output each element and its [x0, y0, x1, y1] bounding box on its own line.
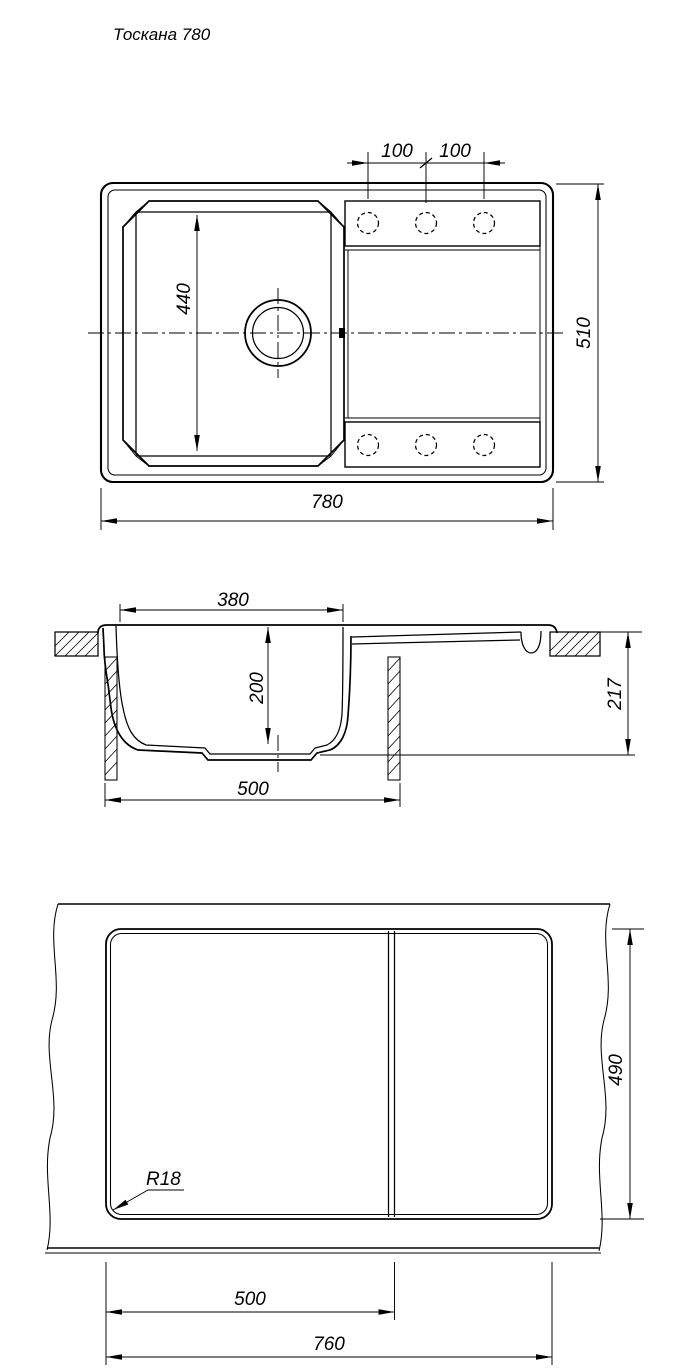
dim-label-200: 200: [247, 672, 268, 705]
rim-top-surface: [98, 625, 557, 633]
arrowhead: [327, 607, 343, 613]
arrowhead: [113, 1200, 128, 1210]
drainboard-surface: [352, 632, 521, 637]
dim-label-100-right: 100: [439, 141, 471, 162]
dim-label-217: 217: [605, 677, 626, 711]
technical-drawing-canvas: Тоскана 780: [0, 0, 696, 1372]
dim-label-500-cutout: 500: [234, 1289, 266, 1310]
countertop-section: [55, 632, 600, 656]
tap-hole: [416, 435, 437, 456]
sink-outer-outline: [101, 183, 553, 482]
arrowhead: [194, 215, 200, 231]
cutout-view: R18 490 500 760: [45, 904, 644, 1365]
arrowhead: [352, 160, 368, 166]
arrowhead: [595, 184, 601, 200]
dimension-bowl-depth: 200: [247, 627, 271, 744]
dimension-hole-pitch: 100 100: [347, 141, 505, 203]
dim-label-780: 780: [311, 492, 343, 513]
tap-hole: [358, 435, 379, 456]
dim-label-760: 760: [313, 1334, 345, 1355]
drainboard: [345, 201, 540, 467]
radius-label: R18: [146, 1169, 181, 1190]
arrowhead: [625, 632, 631, 648]
hatching-left: [55, 632, 98, 656]
hatching-right: [550, 632, 600, 656]
radius-callout: R18: [113, 1169, 184, 1210]
dim-label-510: 510: [574, 317, 595, 349]
tap-platform-top: [345, 201, 540, 246]
dimension-total-height: 217: [600, 632, 642, 755]
leader-line: [113, 1190, 184, 1210]
dim-label-380: 380: [217, 590, 249, 611]
tap-hole: [474, 435, 495, 456]
arrowhead: [101, 518, 117, 524]
top-view: 100 100 440 510 780: [88, 141, 604, 530]
bowl-wall-outer: [103, 628, 351, 760]
drip-groove: [521, 631, 541, 653]
arrowhead: [120, 607, 136, 613]
sink-rim-inner-line: [108, 190, 546, 475]
arrowhead: [194, 435, 200, 451]
arrowhead: [106, 1354, 122, 1360]
drawing-page: Тоскана 780: [0, 0, 696, 1372]
dim-label-490: 490: [606, 1054, 627, 1086]
bowl-opening: [136, 212, 331, 456]
arrowhead: [627, 1203, 633, 1219]
extension-lines: [106, 1262, 395, 1365]
hatching-wall-right: [388, 658, 400, 775]
drawing-title: Тоскана 780: [113, 25, 211, 44]
bowl-divider-line: [389, 931, 395, 1217]
arrowhead: [627, 929, 633, 945]
dim-label-440: 440: [174, 283, 195, 315]
dim-label-100-left: 100: [381, 141, 413, 162]
tap-platform-bottom: [345, 422, 540, 467]
bowl-wall-inner: [116, 626, 343, 754]
arrowhead: [379, 1309, 395, 1315]
tap-hole: [358, 213, 379, 234]
arrowhead: [105, 797, 121, 803]
arrowhead: [106, 1309, 122, 1315]
dimension-overall-length: 780: [101, 488, 553, 530]
arrowhead: [384, 797, 400, 803]
dimension-bowl-top-width: 380: [120, 590, 343, 622]
tap-hole: [416, 213, 437, 234]
section-view: 380 200 500 217: [55, 590, 642, 807]
arrowhead: [536, 1354, 552, 1360]
dimension-overall-depth: 510: [556, 184, 604, 482]
arrowhead: [595, 466, 601, 482]
tap-holes: [358, 213, 495, 456]
arrowhead: [265, 627, 271, 643]
dimension-cutout-length: 760: [106, 1262, 552, 1365]
tap-hole: [474, 213, 495, 234]
arrowhead: [484, 160, 500, 166]
drainboard-underside: [352, 640, 520, 644]
break-line-left: [47, 904, 58, 1250]
dimension-cutout-depth: 490: [600, 929, 644, 1219]
arrowhead: [625, 739, 631, 755]
dim-label-500-section: 500: [237, 779, 269, 800]
dimension-base-width: 500: [105, 779, 400, 807]
arrowhead: [537, 518, 553, 524]
cabinet-wall-right: [388, 657, 400, 780]
dimension-bowl-cutout-width: 500: [106, 1262, 395, 1365]
arrowhead: [265, 728, 271, 744]
